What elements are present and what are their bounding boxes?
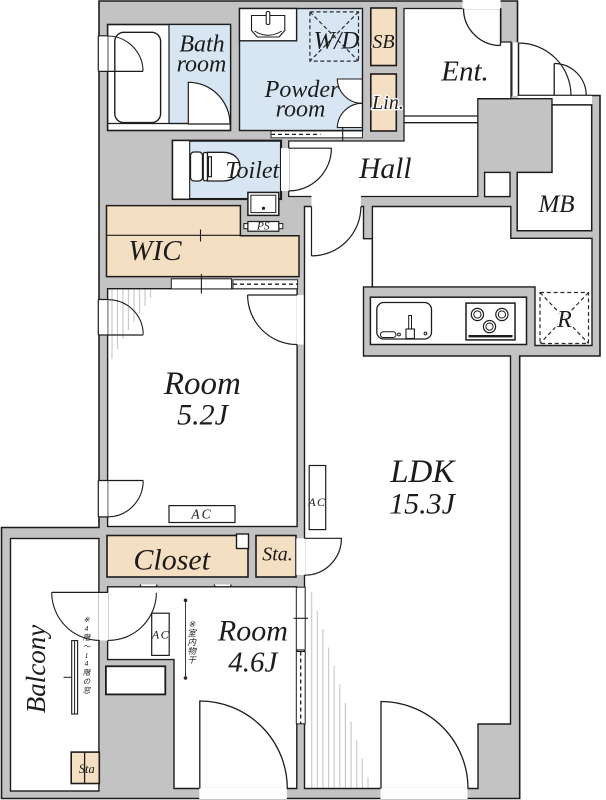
svg-text:AC: AC xyxy=(151,628,170,642)
svg-text:Room: Room xyxy=(217,615,288,648)
svg-text:〜: 〜 xyxy=(83,642,91,651)
svg-text:Toilet: Toilet xyxy=(225,158,280,184)
svg-text:の: の xyxy=(83,677,91,686)
svg-text:room: room xyxy=(276,97,326,123)
svg-text:PS: PS xyxy=(256,221,270,233)
svg-text:WIC: WIC xyxy=(128,235,182,267)
svg-text:SB: SB xyxy=(372,31,394,53)
svg-text:AC: AC xyxy=(190,507,212,522)
svg-text:Sta: Sta xyxy=(79,762,95,776)
svg-text:W/D: W/D xyxy=(313,28,359,55)
svg-text:※: ※ xyxy=(83,615,90,624)
svg-text:15.3J: 15.3J xyxy=(389,488,457,521)
svg-text:MB: MB xyxy=(537,191,574,218)
svg-text:4.6J: 4.6J xyxy=(228,647,278,679)
svg-text:R: R xyxy=(556,307,572,333)
svg-text:Sta.: Sta. xyxy=(262,544,293,566)
svg-text:Lin.: Lin. xyxy=(371,92,404,114)
svg-text:4: 4 xyxy=(85,624,89,633)
svg-text:5.2J: 5.2J xyxy=(177,399,230,432)
svg-text:Ent.: Ent. xyxy=(440,56,489,88)
svg-text:4: 4 xyxy=(85,659,89,668)
svg-text:Balcony: Balcony xyxy=(21,625,51,713)
svg-text:LDK: LDK xyxy=(389,454,456,490)
svg-text:room: room xyxy=(177,52,227,78)
svg-text:Closet: Closet xyxy=(133,544,210,577)
svg-text:Room: Room xyxy=(163,366,241,402)
svg-text:干: 干 xyxy=(188,655,198,665)
svg-text:AC: AC xyxy=(307,495,326,509)
svg-text:Hall: Hall xyxy=(358,153,411,185)
